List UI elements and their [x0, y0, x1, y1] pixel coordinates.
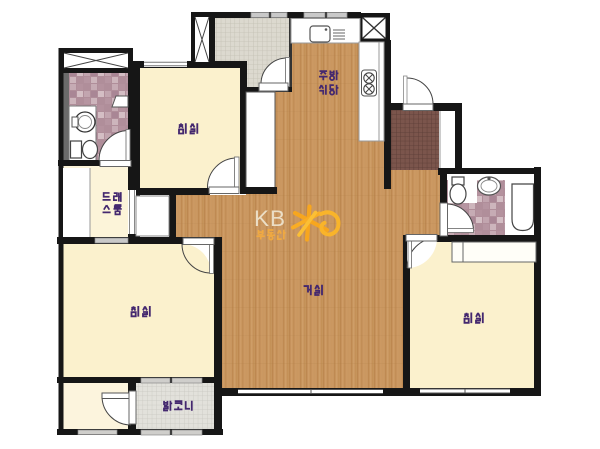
svg-text:KB: KB: [254, 206, 286, 231]
